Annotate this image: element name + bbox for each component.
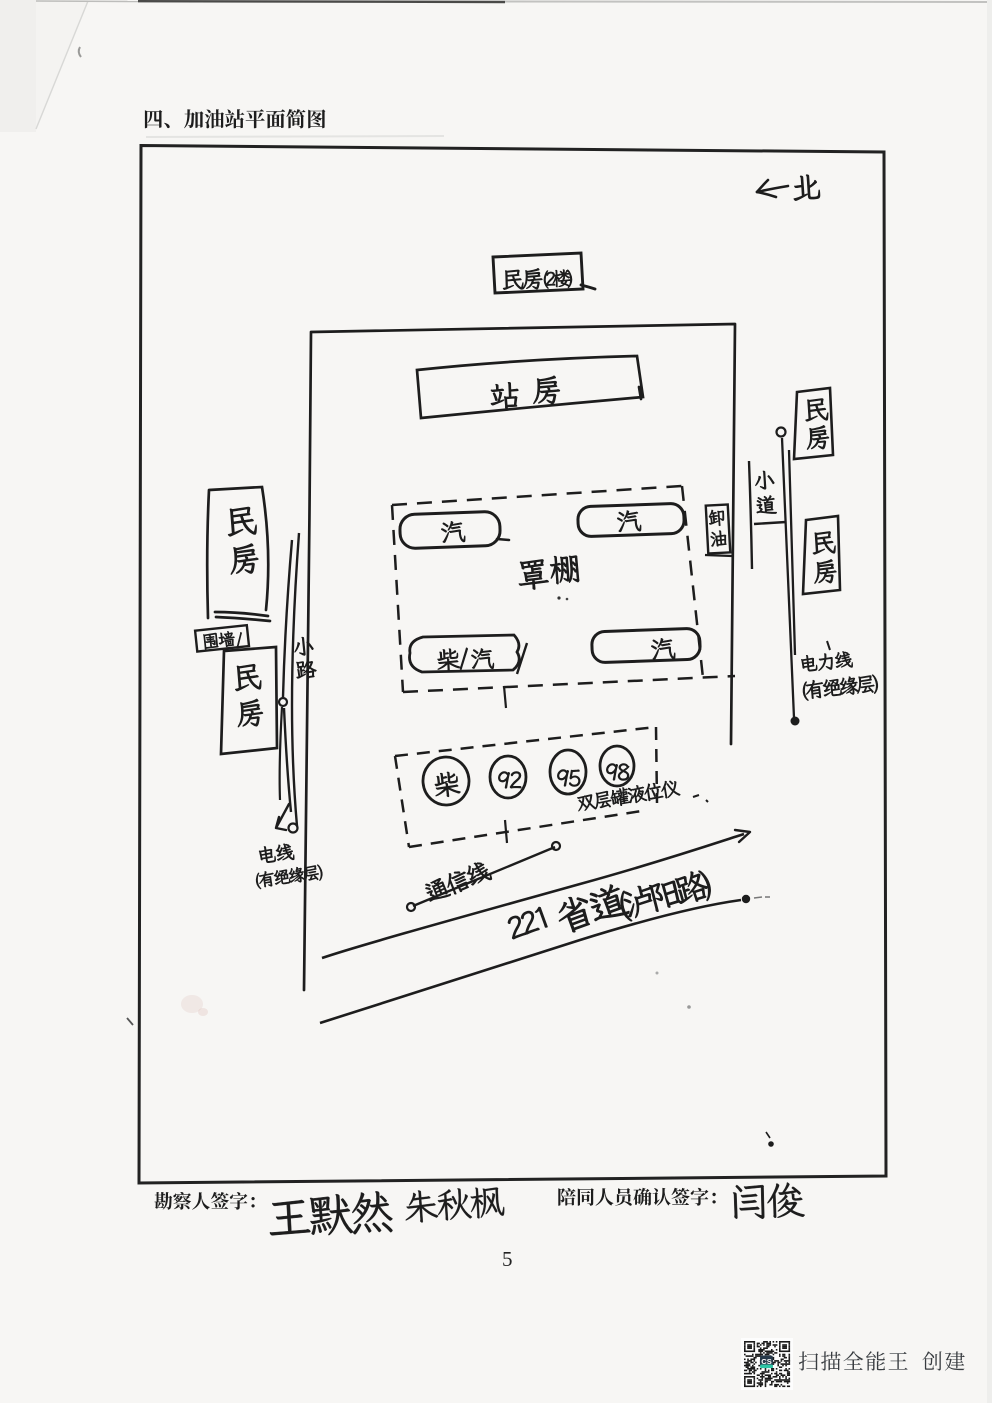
- svg-text:5: 5: [502, 1247, 513, 1271]
- svg-text:CS: CS: [761, 1357, 771, 1366]
